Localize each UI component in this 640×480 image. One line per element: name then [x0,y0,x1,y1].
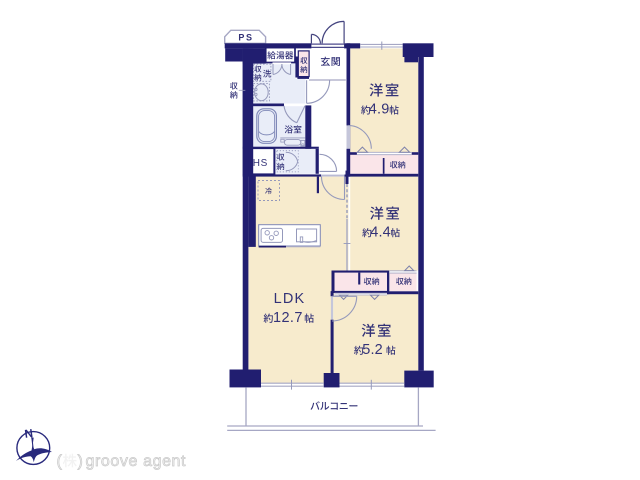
svg-text:12.7: 12.7 [273,310,303,326]
svg-text:): ) [78,453,83,470]
svg-text:4.4: 4.4 [370,224,391,240]
svg-text:(: ( [57,453,63,470]
svg-text:PS: PS [238,33,253,43]
svg-text:groove agent: groove agent [86,453,187,470]
svg-text:4.9: 4.9 [369,102,390,118]
svg-text:5.2: 5.2 [362,342,383,358]
svg-text:LDK: LDK [274,291,306,307]
svg-text:HS: HS [253,158,268,169]
